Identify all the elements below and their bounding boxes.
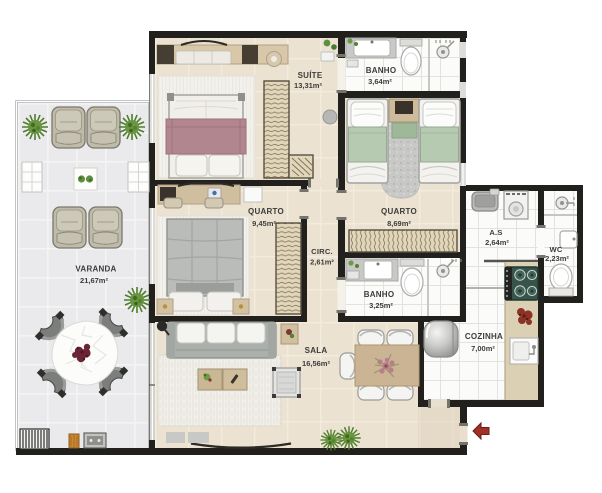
svg-text:BANHO: BANHO [364,290,395,299]
svg-text:21,67m²: 21,67m² [80,276,108,285]
svg-text:2,23m²: 2,23m² [545,254,569,263]
svg-text:8,69m²: 8,69m² [387,219,411,228]
svg-text:SUÍTE: SUÍTE [298,71,323,80]
svg-text:COZINHA: COZINHA [465,332,503,341]
svg-text:WC: WC [549,245,562,254]
svg-text:VARANDA: VARANDA [75,265,116,274]
svg-text:A.S: A.S [489,228,502,237]
svg-text:SALA: SALA [305,346,328,355]
svg-text:2,61m²: 2,61m² [310,258,334,267]
svg-text:3,25m²: 3,25m² [369,301,393,310]
svg-text:QUARTO: QUARTO [381,207,417,216]
svg-text:13,31m²: 13,31m² [294,81,322,90]
svg-text:7,00m²: 7,00m² [471,344,495,353]
svg-text:QUARTO: QUARTO [248,207,284,216]
svg-text:BANHO: BANHO [366,66,397,75]
svg-text:3,64m²: 3,64m² [368,77,392,86]
svg-text:9,45m²: 9,45m² [252,219,276,228]
svg-text:CIRC.: CIRC. [311,247,333,256]
svg-text:2,64m²: 2,64m² [485,238,509,247]
svg-text:16,56m²: 16,56m² [302,359,330,368]
